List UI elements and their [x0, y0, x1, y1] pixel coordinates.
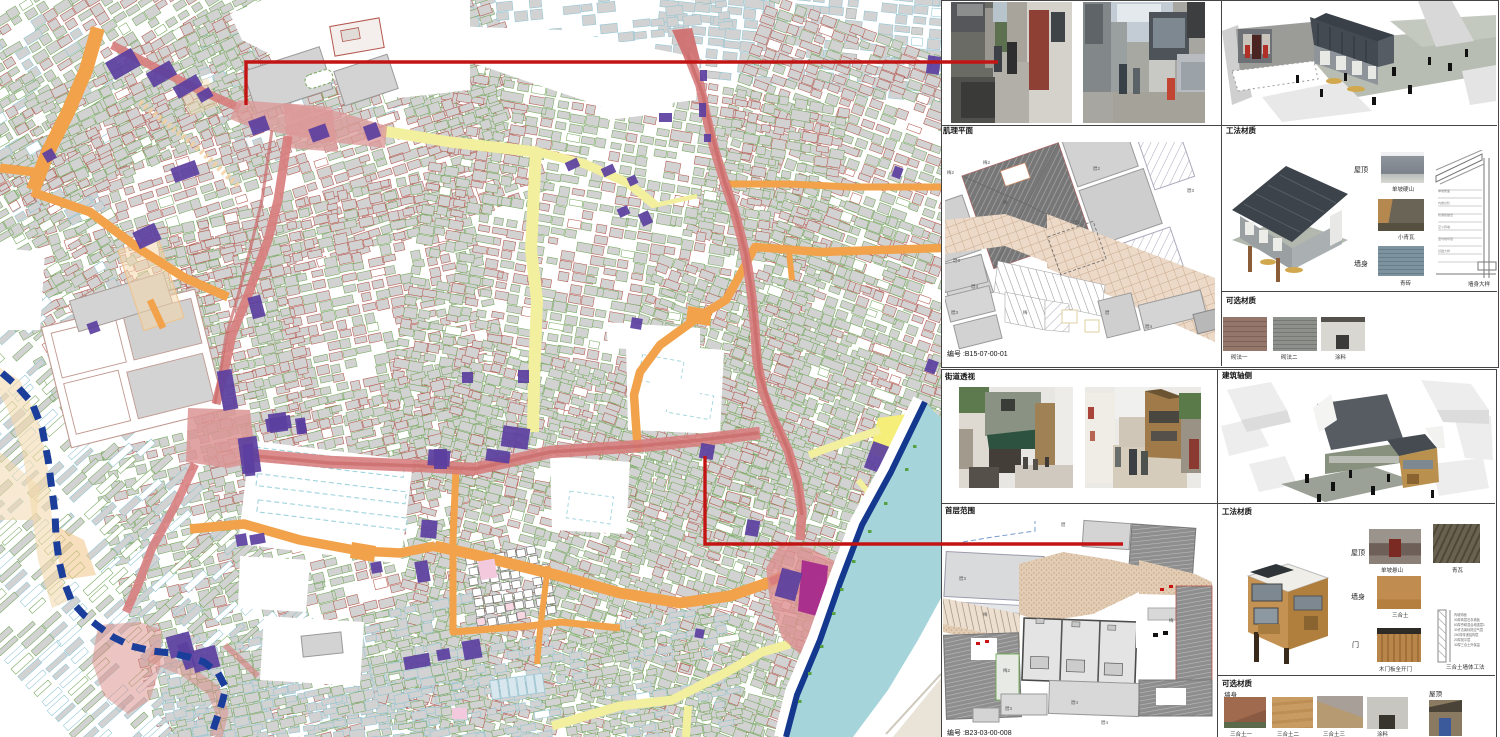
svg-text:梅: 梅 — [983, 611, 988, 618]
svg-text:60厚夯砌混合增强层1: 60厚夯砌混合增强层1 — [1454, 622, 1485, 627]
svg-text:梅2: 梅2 — [1003, 667, 1010, 674]
svg-text:梅: 梅 — [1169, 617, 1174, 624]
svg-text:30许志薯标陆空气层: 30许志薯标陆空气层 — [1454, 627, 1483, 632]
svg-text:室内地坪层: 室内地坪层 — [1438, 236, 1453, 241]
svg-text:梅2: 梅2 — [983, 159, 990, 166]
svg-text:梅: 梅 — [1003, 199, 1008, 206]
svg-text:30厚砖层石灰墙板: 30厚砖层石灰墙板 — [1454, 617, 1481, 622]
svg-text:梅2: 梅2 — [947, 169, 954, 176]
svg-text:梅: 梅 — [1023, 309, 1028, 316]
svg-text:20厚找平层: 20厚找平层 — [1454, 637, 1470, 642]
svg-text:空斗砖墙: 空斗砖墙 — [1438, 224, 1450, 229]
svg-text:240厚传递结构层: 240厚传递结构层 — [1454, 632, 1478, 637]
svg-text:防潮层做法: 防潮层做法 — [1438, 212, 1453, 217]
svg-text:30厚三合土外保温: 30厚三合土外保温 — [1454, 642, 1481, 647]
svg-text:基础大样: 基础大样 — [1438, 248, 1450, 253]
svg-text:单坡屋面: 单坡屋面 — [1438, 188, 1450, 193]
svg-text:内墙饰面: 内墙饰面 — [1454, 612, 1467, 617]
svg-text:内嵌台阶: 内嵌台阶 — [1438, 200, 1450, 205]
